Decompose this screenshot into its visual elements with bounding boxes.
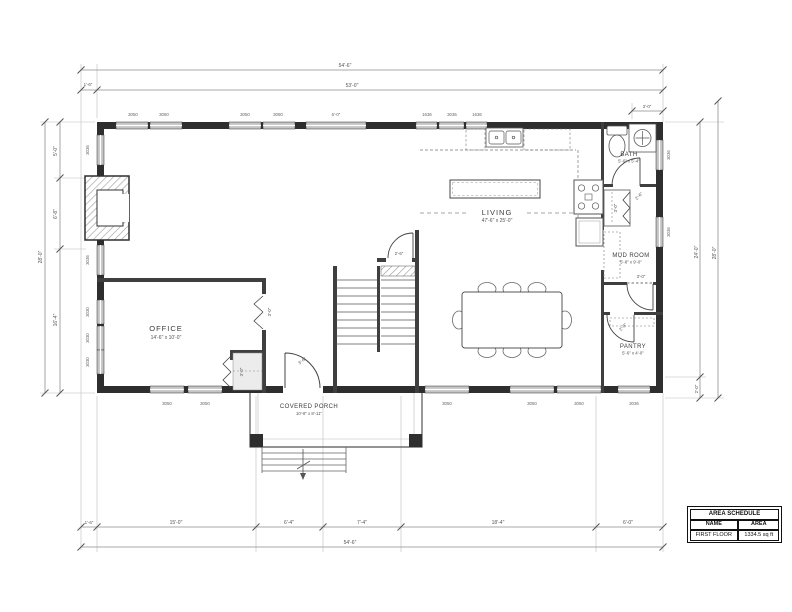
door-label-office: 3'-0" (267, 307, 272, 316)
window-label-top-7: 1636 (472, 112, 482, 117)
dim-top-main: 53'-0" (346, 83, 359, 89)
room-label-pantry: PANTRY (620, 344, 646, 350)
door-label-mud-room: 3'-0" (637, 274, 646, 279)
dim-left-0: 5'-0" (53, 146, 59, 156)
area-schedule-col-name: NAME (690, 520, 739, 531)
room-label-living: LIVING (482, 208, 513, 217)
dim-bottom-overall: 54'-6" (344, 540, 357, 546)
window-label-right-0: 3036 (666, 150, 671, 160)
room-size-covered-porch: 10'-8" x 8'-11" (296, 411, 323, 416)
door-label-stair: 2'-6" (395, 251, 404, 256)
window-label-right-1: 3036 (666, 227, 671, 237)
window-label-bottom-5: 3036 (629, 401, 639, 406)
mud-room-door (627, 283, 653, 310)
dim-left-1: 6'-8" (53, 209, 59, 219)
fireplace (85, 176, 129, 240)
dim-right-1: 2'-0" (694, 384, 699, 393)
window-label-bottom-1: 3050 (200, 401, 210, 406)
dim-bottom-0: 1'-6" (85, 520, 94, 525)
window-label-top-0: 3050 (128, 112, 138, 117)
door-label-pantry: 2'-8" (618, 322, 628, 332)
dim-bottom-5: 6'-0" (623, 520, 633, 526)
window-label-left-0: 3036 (85, 145, 90, 155)
area-schedule-title: AREA SCHEDULE (690, 509, 780, 520)
window-label-bottom-0: 3050 (162, 401, 172, 406)
dim-top-offset: 1'-6" (84, 82, 93, 87)
window-label-top-4: 6'-0" (332, 112, 341, 117)
window-label-left-4: 3030 (85, 357, 90, 367)
window-label-left-2: 3030 (85, 307, 90, 317)
front-door-opening (283, 385, 323, 394)
door-label-office-closet: 3'-0" (239, 367, 244, 376)
floor-plan-sheet: LIVING 47'-6" x 25'-0" OFFICE 14'-6" x 1… (0, 0, 792, 612)
dim-right-0: 24'-0" (694, 245, 700, 258)
dim-top-overall: 54'-6" (339, 63, 352, 69)
window-label-bottom-4: 3050 (574, 401, 584, 406)
window-label-top-3: 3050 (273, 112, 283, 117)
room-size-pantry: 5'-6" x 4'-0" (622, 351, 644, 356)
room-size-living: 47'-6" x 25'-0" (482, 218, 513, 224)
dim-vanity: 3'-0" (643, 104, 652, 109)
dim-left-overall: 28'-0" (38, 250, 44, 263)
kitchen-island (450, 180, 540, 198)
dim-bottom-1: 15'-0" (170, 520, 183, 526)
window-label-top-2: 3050 (240, 112, 250, 117)
area-schedule-row-name: FIRST FLOOR (690, 530, 739, 541)
stair-door-opening (386, 257, 412, 263)
area-schedule-row-area: 1334.5 sq ft (738, 530, 779, 541)
room-label-office: OFFICE (149, 324, 183, 333)
dim-bottom-3: 7'-4" (357, 520, 367, 526)
room-size-mud-room: 5'-8" x 9'-0" (620, 260, 642, 265)
room-size-office: 14'-6" x 10'-0" (151, 335, 182, 341)
room-size-bath: 5'-6" x 5'-4" (618, 159, 640, 164)
door-label-hall-closet: 3'-0" (613, 203, 618, 212)
room-label-mud-room: MUD ROOM (612, 253, 649, 259)
window-label-bottom-2: 3050 (442, 401, 452, 406)
door-label-entry: 3'-6" (297, 356, 307, 366)
room-label-bath: BATH (620, 152, 637, 158)
dim-left-2: 16'-4" (53, 313, 59, 326)
room-label-covered-porch: COVERED PORCH (280, 404, 338, 410)
window-label-top-1: 3050 (159, 112, 169, 117)
dim-bottom-4: 18'-4" (492, 520, 505, 526)
floor-plan-drawing: LIVING 47'-6" x 25'-0" OFFICE 14'-6" x 1… (0, 0, 792, 612)
window-label-left-1: 3036 (85, 255, 90, 265)
area-schedule-table: AREA SCHEDULE NAME AREA FIRST FLOOR 1334… (687, 506, 782, 543)
window-label-bottom-3: 3050 (527, 401, 537, 406)
area-schedule-col-area: AREA (738, 520, 779, 531)
dim-right-overall: 28'-0" (712, 246, 718, 259)
pantry-shelves (610, 318, 654, 326)
door-label-bath: 2'-6" (634, 191, 644, 201)
window-label-top-5: 1636 (422, 112, 432, 117)
window-label-left-3: 3030 (85, 333, 90, 343)
dining-table (453, 283, 572, 358)
dim-bottom-2: 6'-4" (284, 520, 294, 526)
stairs (336, 266, 415, 344)
window-label-top-6: 3036 (447, 112, 457, 117)
